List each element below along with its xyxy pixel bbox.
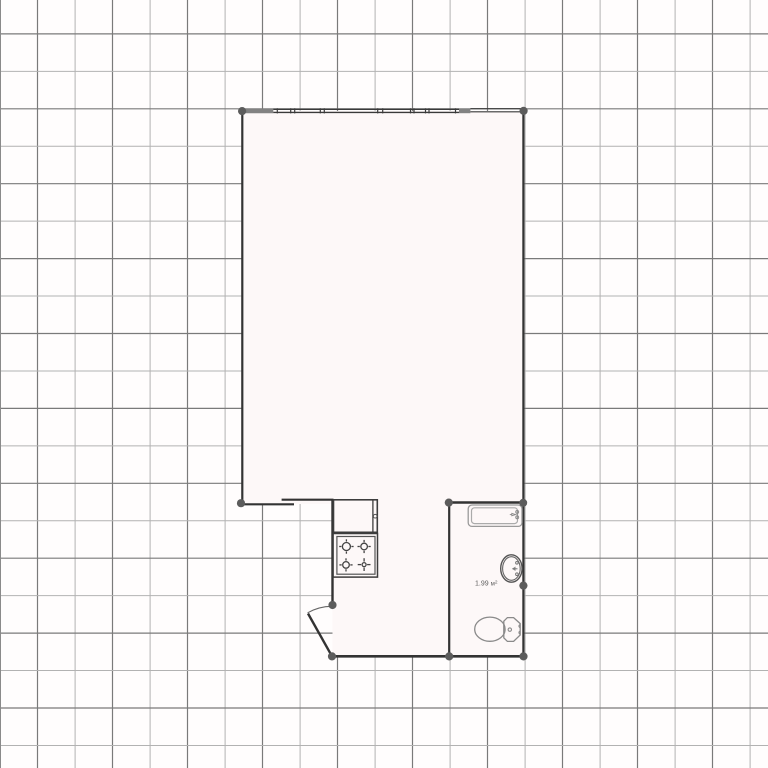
svg-text:1.99 м2: 1.99 м2 [475,580,498,588]
